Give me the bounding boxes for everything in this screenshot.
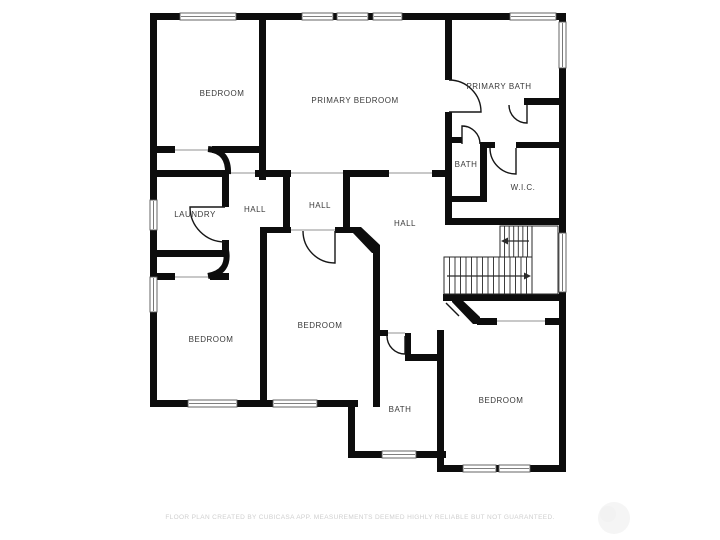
wall (150, 400, 358, 407)
disclaimer-text: FLOOR PLAN CREATED BY CUBICASA APP. MEAS… (0, 514, 720, 521)
room-label: BATH (455, 160, 478, 169)
wall (373, 330, 388, 336)
wall (524, 98, 566, 105)
wall (150, 146, 175, 153)
wall (283, 170, 290, 233)
room-label: PRIMARY BEDROOM (311, 96, 398, 105)
door-swing (509, 105, 527, 123)
wall (260, 227, 267, 407)
door-swing (387, 336, 405, 354)
wall (343, 170, 350, 233)
room-label: BEDROOM (189, 335, 234, 344)
room-label: HALL (309, 201, 331, 210)
wall (373, 247, 380, 407)
room-label: PRIMARY BATH (466, 82, 531, 91)
floor-plan-page: BEDROOMPRIMARY BEDROOMPRIMARY BATHBATHW.… (0, 0, 720, 540)
wall (150, 250, 229, 257)
room-label: LAUNDRY (174, 210, 216, 219)
room-label: BEDROOM (298, 321, 343, 330)
wall (405, 354, 444, 361)
room-label: BATH (389, 405, 412, 414)
wall (480, 142, 487, 202)
wall (150, 170, 229, 177)
room-label: HALL (394, 219, 416, 228)
wall (335, 227, 353, 233)
door-swing (303, 231, 335, 263)
wall-diagonal (353, 227, 380, 253)
wall (445, 13, 452, 80)
room-label: BEDROOM (200, 89, 245, 98)
room-label: HALL (244, 205, 266, 214)
room-label: W.I.C. (511, 183, 536, 192)
wall (445, 112, 452, 225)
stair-landing (532, 226, 558, 294)
wall (445, 218, 566, 225)
wall (480, 142, 495, 148)
wall (259, 13, 266, 180)
wall (348, 400, 355, 458)
wall (452, 137, 462, 143)
wall (445, 196, 487, 202)
wall (222, 177, 229, 207)
door-swing (490, 148, 516, 174)
wall (516, 142, 566, 148)
wall (437, 330, 444, 472)
floor-plan-svg: BEDROOMPRIMARY BEDROOMPRIMARY BATHBATHW.… (0, 0, 720, 540)
room-label: BEDROOM (479, 396, 524, 405)
door-swing (462, 126, 480, 144)
wall (545, 318, 566, 325)
